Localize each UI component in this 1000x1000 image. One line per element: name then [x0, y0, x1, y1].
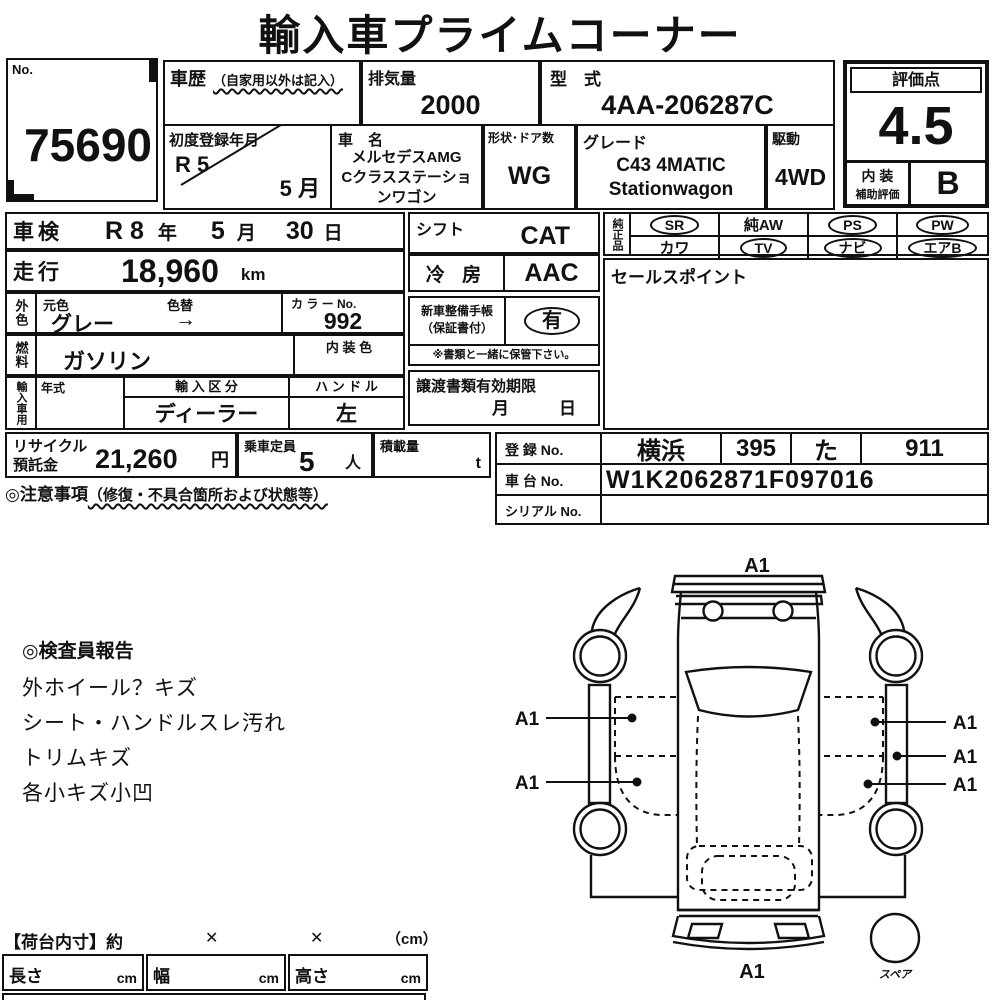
registration-area: 横浜 — [602, 434, 722, 463]
import-division-value: ディーラー — [125, 398, 288, 428]
recycle-unit: 円 — [211, 446, 229, 472]
grade-line2: Stationwagon — [578, 178, 764, 202]
grade-box: グレード C43 4MATIC Stationwagon — [576, 124, 766, 210]
import-row: 輸入車用 年式 輸 入 区 分 ディーラー ハ ン ド ル 左 — [5, 376, 405, 430]
fuel-value: ガソリン — [63, 344, 151, 376]
oem-item-leather: カワ — [659, 237, 689, 258]
inspector-report: ◎検査員報告 外ホイール？キズ シート・ハンドルスレ汚れ トリムキズ 各小キズ小… — [22, 636, 286, 811]
oem-equipment-row: 純正品 SR 純AW PS PW カワ TV ナビ エアB — [603, 212, 989, 256]
capacity-unit: 人 — [345, 449, 361, 473]
color-no-value: 992 — [283, 308, 403, 335]
history-box: 車歴 （自家用以外は記入） — [163, 60, 361, 126]
exterior-color-group-label: 外色 — [7, 294, 37, 332]
inspection-year: R 8 — [105, 217, 144, 246]
lot-number-value: 75690 — [8, 118, 152, 172]
registration-number: 911 — [862, 434, 987, 463]
damage-mark-right1: A1 — [953, 713, 978, 734]
damage-mark-left1: A1 — [515, 709, 540, 730]
import-division-label: 輸 入 区 分 — [125, 378, 288, 398]
capacity-label: 乗車定員 — [244, 436, 296, 455]
load-label: 積載量 — [380, 436, 419, 455]
drive-box: 駆動 4WD — [766, 124, 835, 210]
sales-point-label: セールスポイント — [611, 263, 747, 288]
car-diagram-svg: A1 A1 A1 A1 A1 A1 A1 スペア — [470, 552, 995, 1000]
body-doors-value: WG — [485, 162, 574, 191]
mileage-value: 18,960 — [121, 253, 219, 290]
damage-mark-left2: A1 — [515, 773, 540, 794]
model-code-label: 型 式 — [550, 65, 601, 90]
page-title: 輸入車プライムコーナー — [170, 2, 830, 63]
chassis-no-label: 車 台 No. — [497, 465, 602, 494]
mileage-row: 走行 18,960 km — [5, 250, 405, 292]
cargo-x1: ✕ — [205, 928, 218, 948]
body-doors-box: 形状･ドア数 WG — [483, 124, 576, 210]
inspector-report-title: ◎検査員報告 — [22, 636, 286, 663]
auction-sheet: 輸入車プライムコーナー No. 75690 車歴 （自家用以外は記入） 排気量 … — [0, 0, 1000, 1000]
transfer-day-unit: 日 — [559, 394, 576, 419]
transfer-docs-box: 譲渡書類有効期限 月 日 — [408, 370, 600, 426]
interior-grade-label2: 補助評価 — [847, 186, 908, 202]
transfer-docs-label: 譲渡書類有効期限 — [416, 375, 536, 396]
service-book-value: 有 — [524, 307, 580, 335]
inspection-day-unit: 日 — [324, 218, 343, 245]
recycle-label2: 預託金 — [13, 456, 87, 475]
interior-grade-value: B — [911, 163, 985, 204]
service-book-note: ※書類と一緒に保管下さい。 — [410, 344, 598, 365]
serial-no-value — [602, 496, 987, 523]
ac-box: 冷 房 AAC — [408, 254, 600, 292]
cargo-width-label: 幅 — [153, 962, 170, 987]
oem-item-aw: 純AW — [744, 214, 783, 235]
rating-value: 4.5 — [847, 93, 985, 161]
cargo-x2: ✕ — [310, 928, 323, 948]
oem-item-sr: SR — [650, 215, 699, 235]
service-book-box: 新車整備手帳 （保証書付） 有 ※書類と一緒に保管下さい。 — [408, 296, 600, 366]
model-year-label: 年式 — [41, 379, 65, 396]
cargo-title: 【荷台内寸】約 — [4, 928, 123, 953]
cargo-width-unit: cm — [259, 970, 279, 986]
cargo-height-label: 高さ — [295, 962, 329, 987]
oem-item-ps: PS — [828, 215, 877, 235]
car-diagram: A1 A1 A1 A1 A1 A1 A1 スペア — [470, 552, 995, 1000]
ac-label: 冷 房 — [410, 256, 505, 290]
cargo-section: 【荷台内寸】約 ✕ ✕ （cm） 長さ cm 幅 cm 高さ cm — [2, 928, 432, 1000]
registration-kana: た — [792, 434, 862, 463]
recycle-label1: リサイクル — [13, 437, 87, 456]
inspector-report-line: トリムキズ — [22, 741, 286, 776]
damage-mark-rear: A1 — [739, 961, 765, 983]
body-doors-label: 形状･ドア数 — [488, 129, 554, 146]
serial-no-label: シリアル No. — [497, 496, 602, 523]
inspection-day: 30 — [286, 217, 314, 246]
grade-line1: C43 4MATIC — [578, 154, 764, 178]
cargo-length-unit: cm — [117, 970, 137, 986]
registration-no-label: 登 録 No. — [497, 434, 602, 463]
shift-label: シフト — [416, 216, 464, 240]
service-book-label1: 新車整備手帳 — [410, 302, 504, 319]
first-registration-box: 初度登録年月 R 5 5 月 — [163, 124, 332, 210]
caution-title: ◎注意事項 — [5, 485, 88, 504]
seating-capacity-box: 乗車定員 5 人 — [237, 432, 373, 478]
cargo-unit: （cm） — [386, 928, 438, 949]
lot-number-box: No. 75690 — [6, 58, 158, 202]
first-registration-month: 5 月 — [280, 171, 320, 203]
car-name-line2: Cクラスステーショ — [332, 168, 481, 188]
displacement-value: 2000 — [363, 90, 538, 121]
rating-label: 評価点 — [850, 67, 982, 93]
drive-value: 4WD — [768, 164, 833, 191]
oem-item-navi: ナビ — [824, 238, 882, 258]
interior-color-label: 内 装 色 — [295, 337, 403, 356]
damage-mark-front: A1 — [744, 555, 770, 577]
displacement-box: 排気量 2000 — [361, 60, 540, 126]
capacity-value: 5 — [299, 446, 315, 478]
interior-grade-label1: 内 装 — [847, 166, 908, 186]
caution-line: ◎注意事項（修復・不具合箇所および状態等） — [5, 480, 328, 505]
oem-item-tv: TV — [740, 238, 788, 258]
shift-value: CAT — [520, 222, 570, 251]
handle-label: ハ ン ド ル — [290, 378, 403, 398]
registration-block: 登 録 No. 横浜 395 た 911 車 台 No. W1K2062871F… — [495, 432, 989, 525]
car-name-line1: メルセデスAMG — [332, 148, 481, 168]
inspection-year-unit: 年 — [158, 218, 177, 245]
inspector-report-line: 各小キズ小凹 — [22, 776, 286, 811]
mileage-label: 走行 — [13, 256, 63, 286]
car-body — [672, 576, 825, 949]
exterior-color-row: 外色 元色 色替 グレー → カ ラ ー No. 992 — [5, 292, 405, 334]
inspection-month-unit: 月 — [237, 218, 256, 245]
damage-mark-right2: A1 — [953, 747, 978, 768]
oem-item-pw: PW — [916, 215, 969, 235]
recycle-value: 21,260 — [95, 444, 178, 475]
ac-value: AAC — [505, 256, 598, 290]
fuel-group-label: 燃料 — [7, 336, 37, 374]
load-unit: t — [476, 455, 481, 473]
sales-point-box: セールスポイント — [603, 258, 989, 430]
cargo-length-label: 長さ — [9, 962, 43, 987]
inspection-month: 5 — [211, 217, 225, 246]
car-name-box: 車 名 メルセデスAMG Cクラスステーショ ンワゴン — [330, 124, 483, 210]
spare-wheel-circle — [871, 914, 919, 962]
oem-item-airbag: エアB — [908, 238, 976, 258]
cargo-height-unit: cm — [401, 970, 421, 986]
model-code-box: 型 式 4AA-206287C — [540, 60, 835, 126]
corner-mark — [149, 58, 158, 82]
first-registration-year: R 5 — [175, 152, 209, 178]
cargo-next-row-partial — [2, 993, 426, 1000]
oem-group-label: 純正品 — [605, 214, 631, 254]
car-name-line3: ンワゴン — [332, 188, 481, 208]
spare-wheel-label: スペア — [879, 969, 913, 981]
load-capacity-box: 積載量 t — [373, 432, 491, 478]
transfer-month-unit: 月 — [492, 394, 509, 419]
history-note: （自家用以外は記入） — [213, 70, 343, 89]
color-change-arrow: → — [175, 308, 196, 332]
import-group-label: 輸入車用 — [7, 378, 37, 428]
grade-label: グレード — [583, 129, 647, 153]
fuel-row: 燃料 ガソリン 内 装 色 — [5, 334, 405, 376]
inspector-report-line: 外ホイール？キズ — [22, 671, 286, 706]
rating-box: 評価点 4.5 内 装 補助評価 B — [843, 60, 989, 208]
service-book-label2: （保証書付） — [410, 319, 504, 336]
lot-number-label: No. — [12, 62, 33, 77]
handle-value: 左 — [290, 398, 403, 428]
chassis-no-value: W1K2062871F097016 — [602, 465, 987, 494]
model-code-value: 4AA-206287C — [542, 90, 833, 121]
inspection-label: 車検 — [13, 216, 63, 246]
inspection-expiry-row: 車検 R 8 年 5 月 30 日 — [5, 212, 405, 250]
inspector-report-line: シート・ハンドルスレ汚れ — [22, 706, 286, 741]
mileage-unit: km — [241, 265, 266, 285]
drive-label: 駆動 — [772, 129, 800, 149]
shift-box: シフト CAT — [408, 212, 600, 254]
displacement-label: 排気量 — [368, 65, 416, 89]
caution-sub: （修復・不具合箇所および状態等） — [88, 487, 328, 504]
corner-mark — [6, 180, 14, 202]
history-label: 車歴 — [170, 65, 206, 91]
car-name-label: 車 名 — [338, 129, 383, 150]
registration-class: 395 — [722, 434, 792, 463]
damage-mark-right3: A1 — [953, 775, 978, 796]
recycle-deposit-box: リサイクル 預託金 21,260 円 — [5, 432, 237, 478]
